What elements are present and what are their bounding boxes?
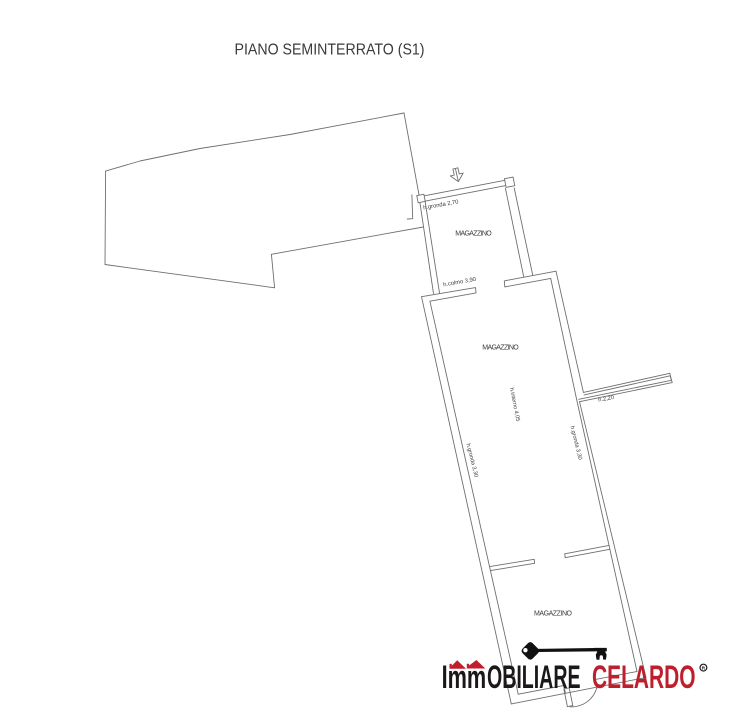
- svg-text:PIANO SEMINTERRATO (S1): PIANO SEMINTERRATO (S1): [235, 42, 425, 59]
- svg-text:MAGAZZINO: MAGAZZINO: [455, 230, 492, 237]
- svg-text:MAGAZZINO: MAGAZZINO: [534, 610, 573, 617]
- svg-text:R: R: [702, 666, 706, 672]
- svg-text:CELARDO: CELARDO: [592, 659, 696, 695]
- svg-text:MAGAZZINO: MAGAZZINO: [482, 345, 519, 352]
- svg-text:OBILIARE: OBILIARE: [487, 659, 581, 695]
- svg-text:Imm: Imm: [442, 659, 487, 695]
